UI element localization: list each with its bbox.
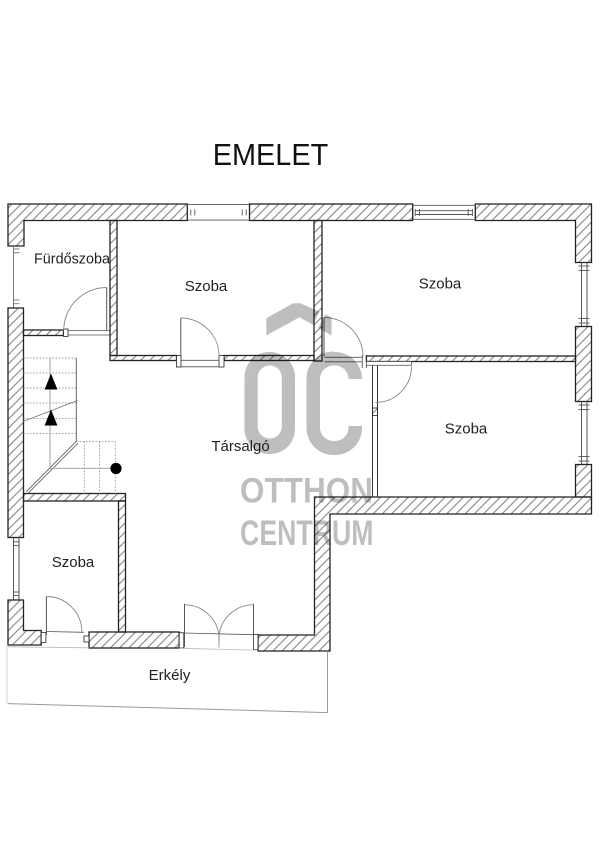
svg-text:Szoba: Szoba (52, 554, 95, 571)
svg-text:Erkély: Erkély (149, 667, 191, 684)
svg-text:Szoba: Szoba (445, 421, 488, 438)
svg-text:Szoba: Szoba (419, 276, 462, 293)
svg-text:Társalgó: Társalgó (211, 438, 269, 455)
svg-text:CENTRUM: CENTRUM (240, 514, 374, 553)
svg-text:Szoba: Szoba (185, 278, 228, 295)
svg-text:OTTHON: OTTHON (240, 471, 373, 510)
svg-text:EMELET: EMELET (213, 138, 329, 172)
svg-text:Fürdőszoba: Fürdőszoba (34, 250, 111, 267)
